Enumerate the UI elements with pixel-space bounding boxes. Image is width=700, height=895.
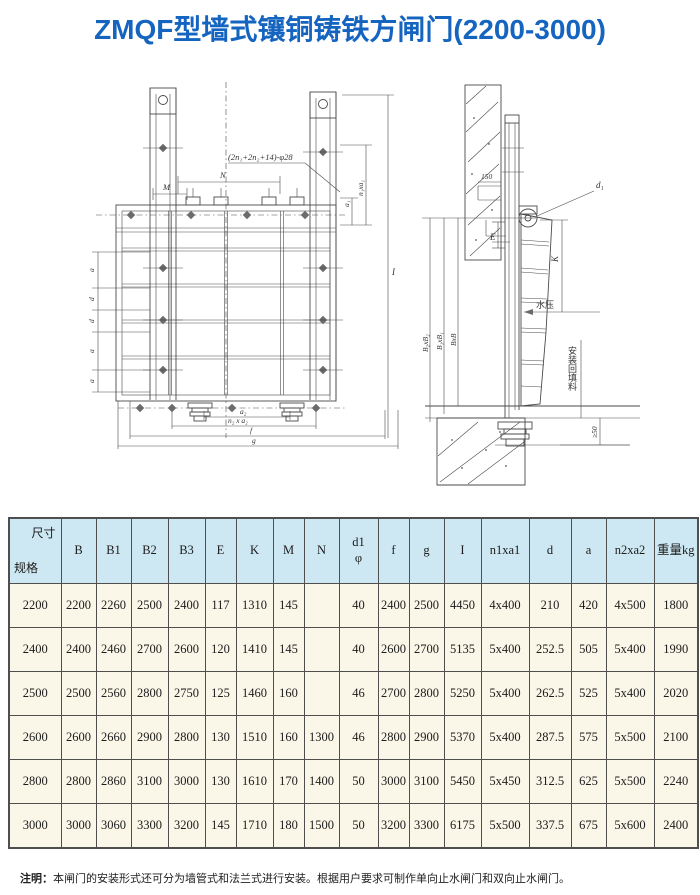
dim-m-label: M [162,182,171,192]
backfill-label: 安装回填料 [567,345,577,392]
technical-drawing: M N (2n₁+2n₂+14)-φ28 a d d a [0,70,700,515]
table-row: 2400240024602700260012014101454026002700… [9,628,698,672]
cell: 2800 [409,672,444,716]
table-body: 2200220022602500240011713101454024002500… [9,584,698,849]
cell: 2750 [168,672,205,716]
cell: 5x500 [606,760,654,804]
table-row: 2500250025602800275012514601604627002800… [9,672,698,716]
gate-front-view: M N (2n₁+2n₂+14)-φ28 a d d a [87,82,398,449]
footer-note: 注明：本闸门的安装形式还可分为墙管式和法兰式进行安装。根据用户要求可制作单向止水… [20,870,685,886]
table-row: 2200220022602500240011713101454024002500… [9,584,698,628]
dim-e-label: E [489,232,496,242]
cell: 3300 [409,804,444,849]
dim-K: K [540,220,568,312]
cell: 170 [273,760,304,804]
row-spec: 2800 [9,760,61,804]
cell: 252.5 [529,628,571,672]
cell: 2800 [168,716,205,760]
cell: 3300 [131,804,168,849]
cell: 2500 [131,584,168,628]
cell: 1500 [304,804,339,849]
col-header: B3 [168,518,205,584]
cell: 117 [205,584,236,628]
cell: 3060 [96,804,131,849]
cell: 2900 [131,716,168,760]
col-header: E [205,518,236,584]
concrete-wall: 150 [465,85,510,260]
left-dim-a1: a [87,268,96,272]
corner-bottom-label: 规格 [14,561,38,576]
cell: 505 [571,628,606,672]
right-guide-rail [310,92,336,400]
cell: 420 [571,584,606,628]
col-header: 重量kg [654,518,698,584]
cell: 5135 [444,628,481,672]
cell: 675 [571,804,606,849]
left-dims: a d d a a [87,252,150,392]
col-header: I [444,518,481,584]
cell: 2700 [378,672,409,716]
cell: 5x400 [481,628,529,672]
row-spec: 2400 [9,628,61,672]
cell: 5x400 [606,672,654,716]
row-spec: 2500 [9,672,61,716]
wedge-right [280,403,304,421]
row-spec: 2200 [9,584,61,628]
cell: 46 [339,672,378,716]
left-dim-d2: d [87,319,96,323]
total-height-label: I [391,267,396,277]
cell: 160 [273,716,304,760]
cell: 145 [273,628,304,672]
table-row: 3000300030603300320014517101801500503200… [9,804,698,849]
cell: 145 [205,804,236,849]
cell: 180 [273,804,304,849]
cell: 50 [339,804,378,849]
cell: 1310 [236,584,273,628]
hinge-d1-label: d₁ [596,180,604,190]
cell: 3100 [409,760,444,804]
left-guide-rail [150,88,176,400]
right-dim-n1xa1: n₁xa₁ [356,180,365,196]
row-spec: 3000 [9,804,61,849]
header-row: 尺寸 规格 BB1B2B3EKMNd1 φfgIn1xa1dan2xa2重量kg [9,518,698,584]
cell: 160 [273,672,304,716]
cell: 2600 [61,716,96,760]
cell: 1400 [304,760,339,804]
right-dim-a1: a₁ [342,200,351,207]
cell: 145 [273,584,304,628]
cell: 1800 [654,584,698,628]
cell: 40 [339,584,378,628]
col-header: n2xa2 [606,518,654,584]
table-row: 2800280028603100300013016101701400503000… [9,760,698,804]
page-title: ZMQF型墙式镶铜铸铁方闸门(2200-3000) [0,8,700,48]
cell: 3100 [131,760,168,804]
cell: 2900 [409,716,444,760]
dim-g-label: g [252,436,256,445]
cell: 4x500 [606,584,654,628]
bolt-hole-note: (2n₁+2n₂+14)-φ28 [228,152,340,192]
cell: 1410 [236,628,273,672]
water-pressure-label: 水压 [536,299,554,310]
cell: 3000 [378,760,409,804]
cell: 2600 [168,628,205,672]
cell: 2400 [168,584,205,628]
cell: 2400 [654,804,698,849]
cell: 120 [205,628,236,672]
cell: 125 [205,672,236,716]
col-header: B1 [96,518,131,584]
cell: 2260 [96,584,131,628]
clearance-dim: ≥50 [560,418,630,445]
floor-slab [425,406,640,485]
cell: 40 [339,628,378,672]
width-dim-b2: B₂xB₂ [421,334,430,352]
cell [304,628,339,672]
cell: 130 [205,716,236,760]
cell: 5370 [444,716,481,760]
col-header: d [529,518,571,584]
width-dim-b1: B₁xB₁ [435,332,444,350]
left-dim-a3: a [87,379,96,383]
dim-k-label: K [550,255,560,263]
cell: 5x500 [606,716,654,760]
dim-a2-label: a₂ [240,407,247,416]
col-header: B2 [131,518,168,584]
cell: 2500 [409,584,444,628]
left-dim-a2: a [87,349,96,353]
cell: 2500 [61,672,96,716]
dim-E: E [489,222,505,248]
col-header: a [571,518,606,584]
cell: 2400 [61,628,96,672]
width-dim-b: BxB [449,333,458,346]
col-header: K [236,518,273,584]
cell: 130 [205,760,236,804]
row-spec: 2600 [9,716,61,760]
cell: 2700 [131,628,168,672]
gate-section-view: 150 d₁ [421,85,640,485]
col-header: B [61,518,96,584]
left-dim-d1: d [87,297,96,301]
cell: 2020 [654,672,698,716]
cell: 2600 [378,628,409,672]
table-row: 2600260026602900280013015101601300462800… [9,716,698,760]
cell: 5450 [444,760,481,804]
recess-150-label: 150 [481,172,493,181]
cell [304,672,339,716]
dim-n2a2-label: n₂ x a₂ [228,416,248,425]
cell: 2400 [378,584,409,628]
cell: 287.5 [529,716,571,760]
cell: 5x400 [606,628,654,672]
col-header: d1 φ [339,518,378,584]
cell: 2200 [61,584,96,628]
cell: 46 [339,716,378,760]
cell: 625 [571,760,606,804]
cell: 2100 [654,716,698,760]
cell: 2560 [96,672,131,716]
note-text: 本闸门的安装形式还可分为墙管式和法兰式进行安装。根据用户要求可制作单向止水闸门和… [53,873,570,885]
cell: 2800 [61,760,96,804]
cell: 312.5 [529,760,571,804]
top-lugs [186,188,304,205]
cell: 3200 [168,804,205,849]
cell: 5x400 [481,672,529,716]
note-label: 注明： [20,873,53,885]
cell: 2660 [96,716,131,760]
clearance-label: ≥50 [590,426,599,438]
cell [304,584,339,628]
width-dims: B₂xB₂ B₁xB₁ BxB [421,218,521,422]
cell: 5x400 [481,716,529,760]
cell: 2700 [409,628,444,672]
cell: 4450 [444,584,481,628]
cell: 525 [571,672,606,716]
cell: 3000 [168,760,205,804]
cell: 50 [339,760,378,804]
cell: 575 [571,716,606,760]
col-header: f [378,518,409,584]
cell: 1510 [236,716,273,760]
dim-f-label: f [250,426,253,435]
cell: 1460 [236,672,273,716]
cell: 3000 [61,804,96,849]
col-header: g [409,518,444,584]
wedge-left [188,403,212,421]
col-header: N [304,518,339,584]
cell: 1710 [236,804,273,849]
cell: 5x500 [481,804,529,849]
col-header: n1xa1 [481,518,529,584]
cell: 5250 [444,672,481,716]
cell: 1990 [654,628,698,672]
cell: 2860 [96,760,131,804]
cell: 2240 [654,760,698,804]
cell: 3200 [378,804,409,849]
cell: 2460 [96,628,131,672]
cell: 2800 [131,672,168,716]
bolt-note-label: (2n₁+2n₂+14)-φ28 [228,152,293,162]
col-header: M [273,518,304,584]
cell: 5x600 [606,804,654,849]
cell: 337.5 [529,804,571,849]
spec-table: 尺寸 规格 BB1B2B3EKMNd1 φfgIn1xa1dan2xa2重量kg… [8,517,699,849]
cell: 210 [529,584,571,628]
cell: 1300 [304,716,339,760]
cell: 6175 [444,804,481,849]
cell: 5x450 [481,760,529,804]
table-corner: 尺寸 规格 [9,518,61,584]
right-dims: a₁ n₁xa₁ I [340,95,396,438]
corner-top-label: 尺寸 [31,526,55,541]
cell: 4x400 [481,584,529,628]
cell: 2800 [378,716,409,760]
cell: 1610 [236,760,273,804]
cell: 262.5 [529,672,571,716]
